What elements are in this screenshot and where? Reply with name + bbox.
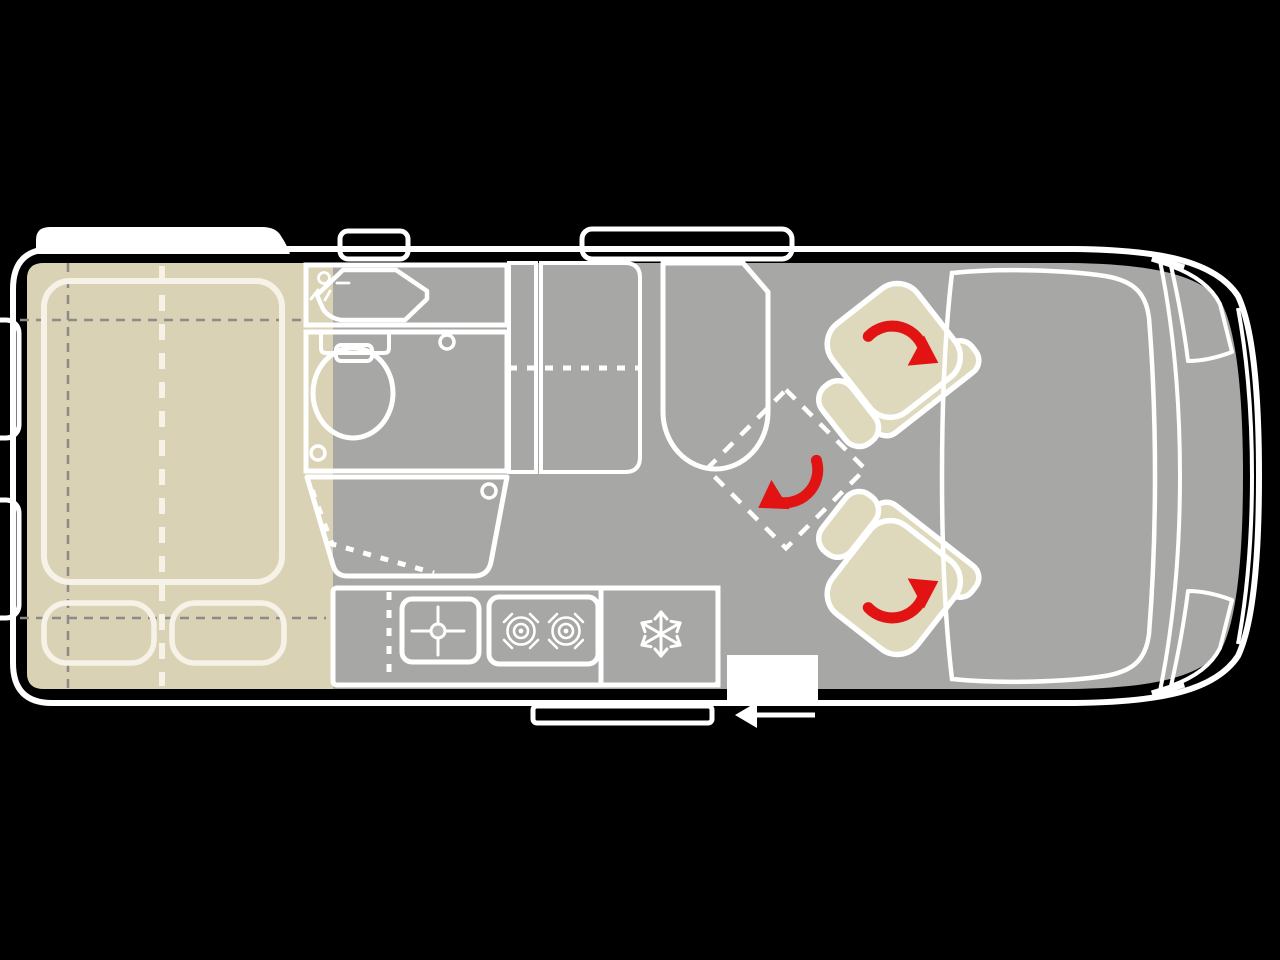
rear-door-marker-bottom <box>0 500 19 618</box>
wall-window-small <box>340 231 408 259</box>
floorplan-canvas <box>0 0 1280 960</box>
rear-door-marker-top <box>0 320 19 438</box>
bed-platform <box>27 263 333 689</box>
wall-window-sliding-door <box>582 229 792 259</box>
sliding-door-rail <box>533 706 712 723</box>
rear-bed-area <box>20 263 333 689</box>
entry-step <box>727 655 818 700</box>
